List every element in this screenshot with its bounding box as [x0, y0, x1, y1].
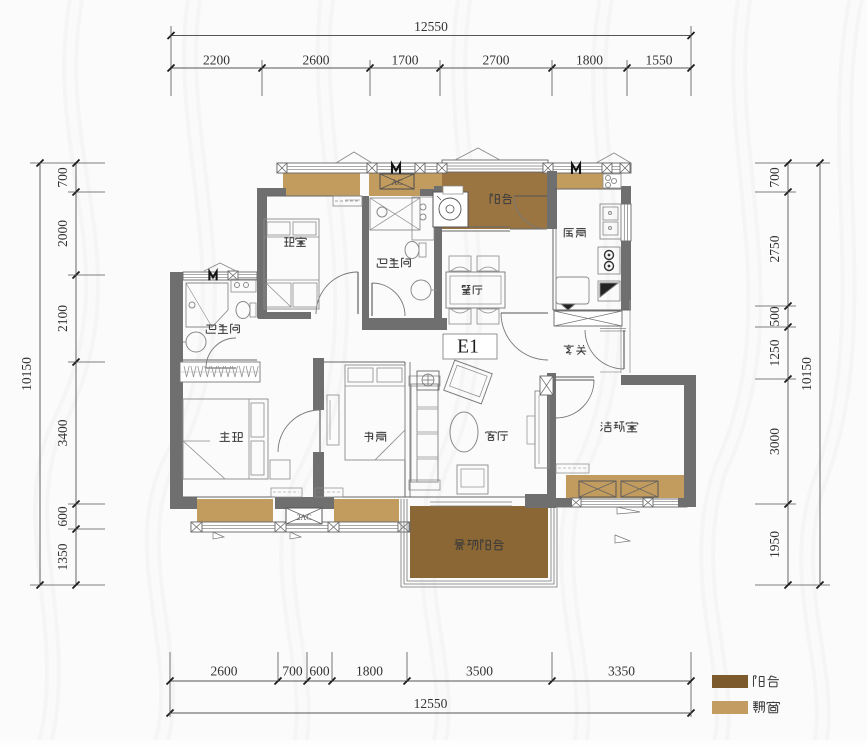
svg-text:2AC: 2AC: [296, 513, 311, 522]
svg-text:E1: E1: [457, 337, 479, 358]
svg-text:2200: 2200: [203, 53, 230, 68]
svg-text:600: 600: [309, 664, 330, 679]
svg-text:2600: 2600: [211, 664, 238, 679]
svg-text:10150: 10150: [799, 357, 814, 391]
svg-text:1950: 1950: [767, 531, 782, 558]
svg-text:2000: 2000: [55, 220, 70, 247]
svg-text:3400: 3400: [55, 419, 70, 446]
svg-text:500: 500: [767, 306, 782, 327]
svg-text:3350: 3350: [608, 664, 635, 679]
svg-text:1250: 1250: [767, 339, 782, 366]
svg-text:12550: 12550: [414, 19, 448, 34]
svg-text:1350: 1350: [55, 543, 70, 570]
svg-text:700: 700: [767, 167, 782, 188]
svg-text:2100: 2100: [55, 305, 70, 332]
svg-text:3000: 3000: [767, 428, 782, 455]
svg-text:3500: 3500: [466, 664, 493, 679]
svg-text:2700: 2700: [483, 53, 510, 68]
svg-text:1800: 1800: [356, 664, 383, 679]
svg-text:600: 600: [55, 506, 70, 527]
svg-text:700: 700: [55, 167, 70, 188]
svg-text:2600: 2600: [303, 53, 330, 68]
svg-text:2750: 2750: [767, 235, 782, 262]
svg-text:12550: 12550: [414, 696, 448, 711]
svg-text:10150: 10150: [19, 357, 34, 391]
svg-text:AC: AC: [391, 178, 402, 187]
svg-text:1550: 1550: [646, 53, 673, 68]
svg-text:1800: 1800: [576, 53, 603, 68]
svg-text:1700: 1700: [392, 53, 419, 68]
svg-text:700: 700: [282, 664, 303, 679]
